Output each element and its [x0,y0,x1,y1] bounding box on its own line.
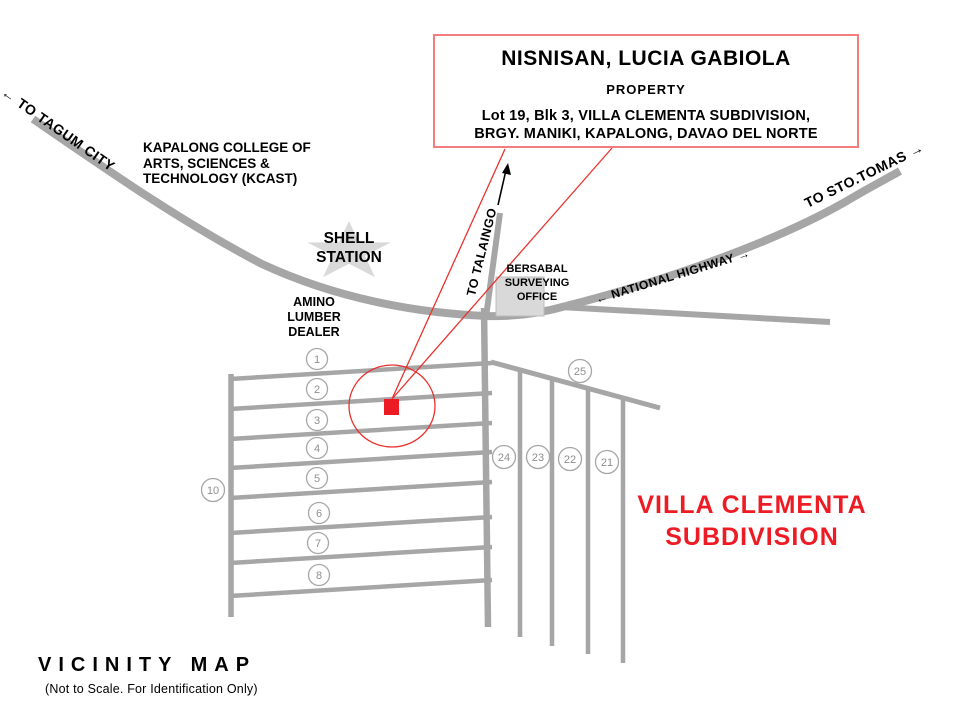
street-row [230,482,492,498]
street-row [230,517,492,533]
vicinity-map-title: VICINITY MAP [38,654,256,677]
lot-circle-5: 5 [307,468,328,489]
kcast-college-label: KAPALONG COLLEGE OF ARTS, SCIENCES & TEC… [143,140,311,187]
street-row [230,547,492,563]
vicinity-map-note: (Not to Scale. For Identification Only) [45,682,258,696]
svg-text:24: 24 [498,452,510,464]
svg-text:7: 7 [315,538,321,550]
villa-clementa-subdivision-label: VILLA CLEMENTA SUBDIVISION [628,489,876,553]
shell-line: STATION [299,248,399,267]
kcast-line: KAPALONG COLLEGE OF [143,140,311,156]
property-label: PROPERTY [435,82,857,97]
property-title-box: NISNISAN, LUCIA GABIOLA PROPERTY Lot 19,… [433,34,859,148]
address-line-1: Lot 19, Blk 3, VILLA CLEMENTA SUBDIVISIO… [435,107,857,125]
address-line-2: BRGY. MANIKI, KAPALONG, DAVAO DEL NORTE [435,125,857,143]
bersabal-office-label: BERSABAL SURVEYING OFFICE [496,262,578,304]
property-marker [384,399,399,415]
lot-circle-24: 24 [493,446,516,469]
svg-text:8: 8 [316,570,322,582]
subdivision-name-line: SUBDIVISION [628,521,876,553]
subdivision-name-line: VILLA CLEMENTA [628,489,876,521]
street-row [230,423,492,439]
kcast-line: TECHNOLOGY (KCAST) [143,171,311,187]
vicinity-map: 1 2 3 4 5 6 7 [0,0,960,720]
amino-line: LUMBER [274,310,354,325]
lot-circle-7: 7 [308,533,329,554]
property-address: Lot 19, Blk 3, VILLA CLEMENTA SUBDIVISIO… [435,107,857,143]
svg-text:1: 1 [314,354,320,366]
street-row [230,393,492,409]
lot-circle-10: 10 [202,479,225,502]
subdivision-streets-right [520,370,623,663]
svg-text:4: 4 [314,443,320,455]
lot-circle-21: 21 [596,451,619,474]
shell-station-label: SHELL STATION [299,229,399,267]
shell-line: SHELL [299,229,399,248]
svg-text:25: 25 [574,366,586,378]
svg-text:6: 6 [316,508,322,520]
owner-name: NISNISAN, LUCIA GABIOLA [435,47,857,71]
svg-text:5: 5 [314,473,320,485]
svg-text:3: 3 [314,415,320,427]
lot-circle-2: 2 [307,379,328,400]
lot-circle-8: 8 [309,565,330,586]
road-east-branch [560,307,830,322]
amino-line: DEALER [274,325,354,340]
street-row [230,363,492,379]
lot-circle-3: 3 [307,410,328,431]
kcast-line: ARTS, SCIENCES & [143,156,311,172]
svg-text:21: 21 [601,457,613,469]
street-row [230,452,492,468]
street-row [230,580,492,596]
talaingo-arrow-icon [498,163,511,205]
lot-circle-6: 6 [309,503,330,524]
lot-circle-25: 25 [569,360,592,383]
lot-circle-23: 23 [527,446,550,469]
amino-lumber-label: AMINO LUMBER DEALER [274,295,354,340]
svg-text:10: 10 [207,485,219,497]
lot-circle-1: 1 [307,349,328,370]
svg-text:23: 23 [532,452,544,464]
subdivision-streets-left [230,363,492,596]
bersabal-line: BERSABAL [496,262,578,276]
bersabal-line: OFFICE [496,290,578,304]
lot-circle-4: 4 [307,438,328,459]
svg-text:2: 2 [314,384,320,396]
amino-line: AMINO [274,295,354,310]
lot-circle-22: 22 [559,448,582,471]
svg-text:22: 22 [564,454,576,466]
bersabal-line: SURVEYING [496,276,578,290]
